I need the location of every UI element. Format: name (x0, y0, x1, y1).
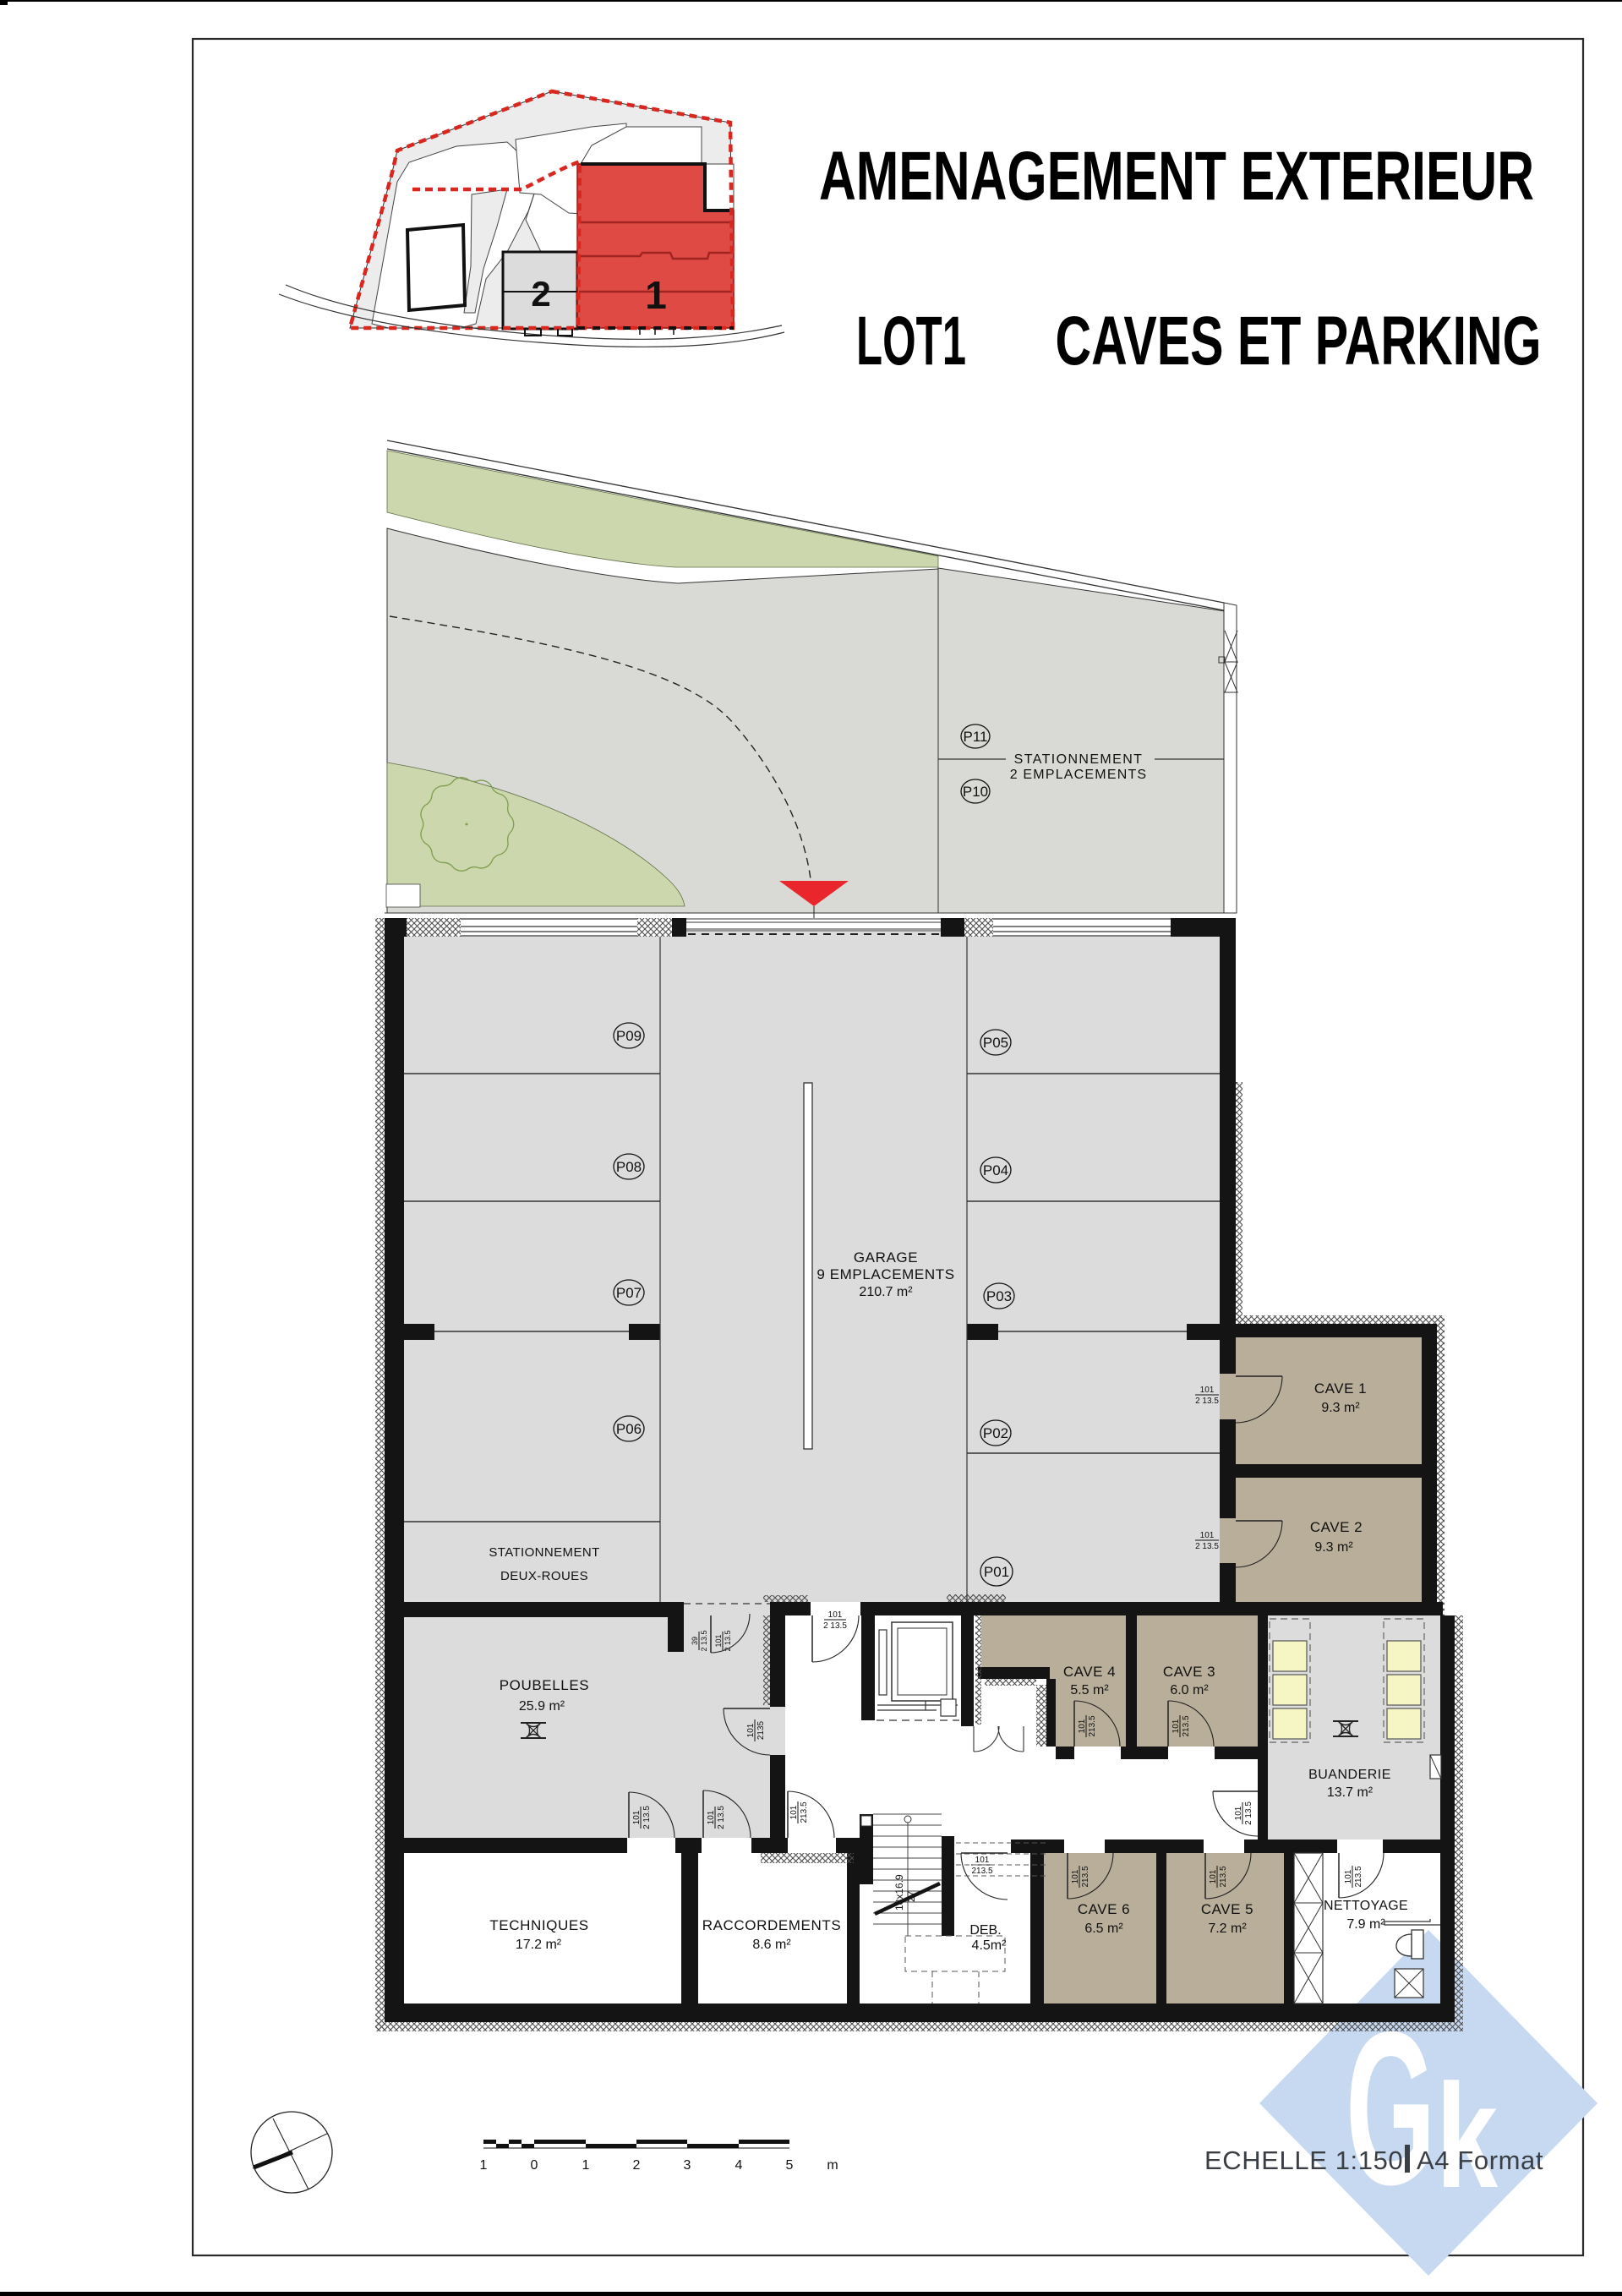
svg-text:P01: P01 (984, 1564, 1009, 1580)
svg-text:GARAGE: GARAGE (854, 1249, 918, 1266)
svg-text:101: 101 (828, 1610, 843, 1620)
svg-text:m: m (827, 2158, 838, 2173)
svg-text:LOT1: LOT1 (856, 303, 966, 380)
svg-text:101: 101 (1200, 1386, 1215, 1395)
svg-text:DEUX-ROUES: DEUX-ROUES (500, 1569, 588, 1583)
svg-text:STATIONNEMENT: STATIONNEMENT (1014, 752, 1144, 767)
svg-text:7.9 m²: 7.9 m² (1346, 1917, 1385, 1932)
svg-text:17.2 m²: 17.2 m² (516, 1938, 562, 1952)
svg-text:13.7 m²: 13.7 m² (1327, 1785, 1374, 1800)
svg-text:2 13.5: 2 13.5 (724, 1630, 732, 1651)
svg-text:210.7 m²: 210.7 m² (859, 1285, 913, 1299)
svg-text:P04: P04 (983, 1162, 1008, 1178)
svg-text:3: 3 (684, 2158, 691, 2173)
svg-text:213.5: 213.5 (800, 1801, 809, 1823)
svg-text:CAVE 5: CAVE 5 (1201, 1901, 1253, 1917)
svg-text:101: 101 (1200, 1531, 1215, 1540)
svg-text:5: 5 (786, 2158, 794, 2173)
svg-text:5.5 m²: 5.5 m² (1070, 1683, 1109, 1697)
svg-text:POUBELLES: POUBELLES (500, 1677, 590, 1693)
svg-text:CAVE 4: CAVE 4 (1063, 1664, 1116, 1680)
svg-text:101: 101 (707, 1810, 716, 1824)
svg-text:STATIONNEMENT: STATIONNEMENT (489, 1545, 599, 1560)
svg-text:P10: P10 (963, 784, 988, 800)
svg-text:CAVE 2: CAVE 2 (1310, 1519, 1363, 1535)
svg-text:CAVE 1: CAVE 1 (1314, 1380, 1367, 1397)
svg-text:2 EMPLACEMENTS: 2 EMPLACEMENTS (1010, 768, 1148, 782)
svg-text:27: 27 (905, 1890, 917, 1902)
svg-text:213.5: 213.5 (1088, 1715, 1097, 1736)
svg-text:101: 101 (1344, 1869, 1353, 1883)
svg-text:101: 101 (714, 1634, 723, 1647)
svg-text:CAVES ET PARKING: CAVES ET PARKING (1055, 303, 1541, 380)
svg-text:2 13.5: 2 13.5 (700, 1630, 708, 1651)
svg-text:2135: 2135 (756, 1720, 766, 1740)
svg-text:213.5: 213.5 (1219, 1866, 1228, 1887)
svg-text:2 13.5: 2 13.5 (1195, 1542, 1219, 1551)
svg-text:213.5: 213.5 (1182, 1715, 1191, 1736)
svg-text:101: 101 (789, 1805, 799, 1819)
svg-text:9.3 m²: 9.3 m² (1321, 1401, 1360, 1415)
svg-text:TECHNIQUES: TECHNIQUES (489, 1917, 588, 1933)
svg-text:8.6 m²: 8.6 m² (752, 1938, 791, 1952)
svg-text:DEB.: DEB. (969, 1923, 1001, 1938)
svg-text:2 13.5: 2 13.5 (1244, 1801, 1253, 1825)
svg-text:101: 101 (1209, 1869, 1218, 1883)
svg-text:101: 101 (746, 1723, 756, 1737)
svg-text:213.5: 213.5 (1081, 1866, 1090, 1887)
svg-text:6.5 m²: 6.5 m² (1084, 1922, 1123, 1936)
svg-text:P11: P11 (964, 729, 988, 745)
svg-text:101: 101 (632, 1810, 642, 1824)
svg-text:9.3 m²: 9.3 m² (1314, 1540, 1353, 1555)
svg-text:1: 1 (645, 273, 667, 317)
svg-text:P09: P09 (616, 1028, 642, 1044)
svg-text:P07: P07 (616, 1285, 642, 1301)
svg-text:213.5: 213.5 (971, 1867, 992, 1876)
svg-text:4.5m²: 4.5m² (972, 1938, 1008, 1953)
svg-text:2 13.5: 2 13.5 (823, 1621, 847, 1631)
svg-text:AMENAGEMENT EXTERIEUR: AMENAGEMENT EXTERIEUR (819, 138, 1534, 215)
svg-text:P05: P05 (983, 1035, 1008, 1051)
svg-text:P02: P02 (983, 1425, 1008, 1441)
svg-text:2: 2 (531, 274, 550, 314)
svg-text:RACCORDEMENTS: RACCORDEMENTS (702, 1917, 842, 1933)
svg-text:A4 Format: A4 Format (1417, 2146, 1543, 2175)
svg-text:2 13.5: 2 13.5 (1195, 1397, 1219, 1406)
svg-text:CAVE 3: CAVE 3 (1163, 1664, 1215, 1680)
svg-text:9 EMPLACEMENTS: 9 EMPLACEMENTS (816, 1266, 954, 1282)
svg-text:6.0 m²: 6.0 m² (1170, 1683, 1209, 1697)
svg-text:P06: P06 (616, 1421, 642, 1437)
svg-text:213.5: 213.5 (1354, 1866, 1363, 1887)
svg-text:0: 0 (531, 2158, 538, 2173)
svg-text:101: 101 (1078, 1719, 1087, 1733)
svg-text:7.2 m²: 7.2 m² (1208, 1922, 1247, 1936)
svg-text:2 13.5: 2 13.5 (642, 1806, 652, 1829)
svg-text:101: 101 (1171, 1719, 1181, 1733)
svg-text:k: k (1436, 2053, 1499, 2219)
svg-text:CAVE 6: CAVE 6 (1078, 1901, 1130, 1917)
svg-text:ECHELLE 1:150: ECHELLE 1:150 (1204, 2146, 1403, 2175)
svg-text:101: 101 (1234, 1806, 1243, 1820)
svg-text:39: 39 (691, 1637, 699, 1645)
svg-text:1: 1 (480, 2158, 488, 2173)
svg-text:BUANDERIE: BUANDERIE (1308, 1768, 1391, 1782)
svg-text:NETTOYAGE: NETTOYAGE (1324, 1899, 1408, 1913)
svg-text:1: 1 (582, 2158, 590, 2173)
svg-text:101: 101 (1071, 1869, 1080, 1883)
svg-text:P08: P08 (616, 1159, 642, 1175)
svg-text:2 13.5: 2 13.5 (717, 1806, 726, 1829)
svg-text:2: 2 (633, 2158, 641, 2173)
svg-text:4: 4 (735, 2158, 743, 2173)
svg-text:25.9 m²: 25.9 m² (519, 1699, 565, 1714)
svg-text:101: 101 (975, 1856, 990, 1865)
svg-text:P03: P03 (986, 1288, 1012, 1304)
svg-text:18x16.9: 18x16.9 (893, 1874, 905, 1911)
